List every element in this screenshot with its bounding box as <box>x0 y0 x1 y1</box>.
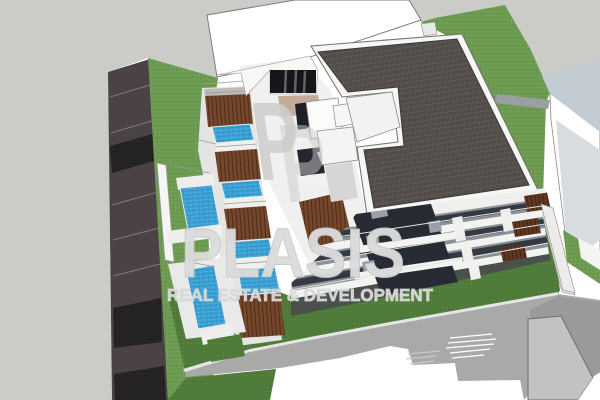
svg-text:REAL ESTATE & DEVELOPMENT: REAL ESTATE & DEVELOPMENT <box>167 285 433 305</box>
svg-text:PLASIS: PLASIS <box>181 214 405 292</box>
